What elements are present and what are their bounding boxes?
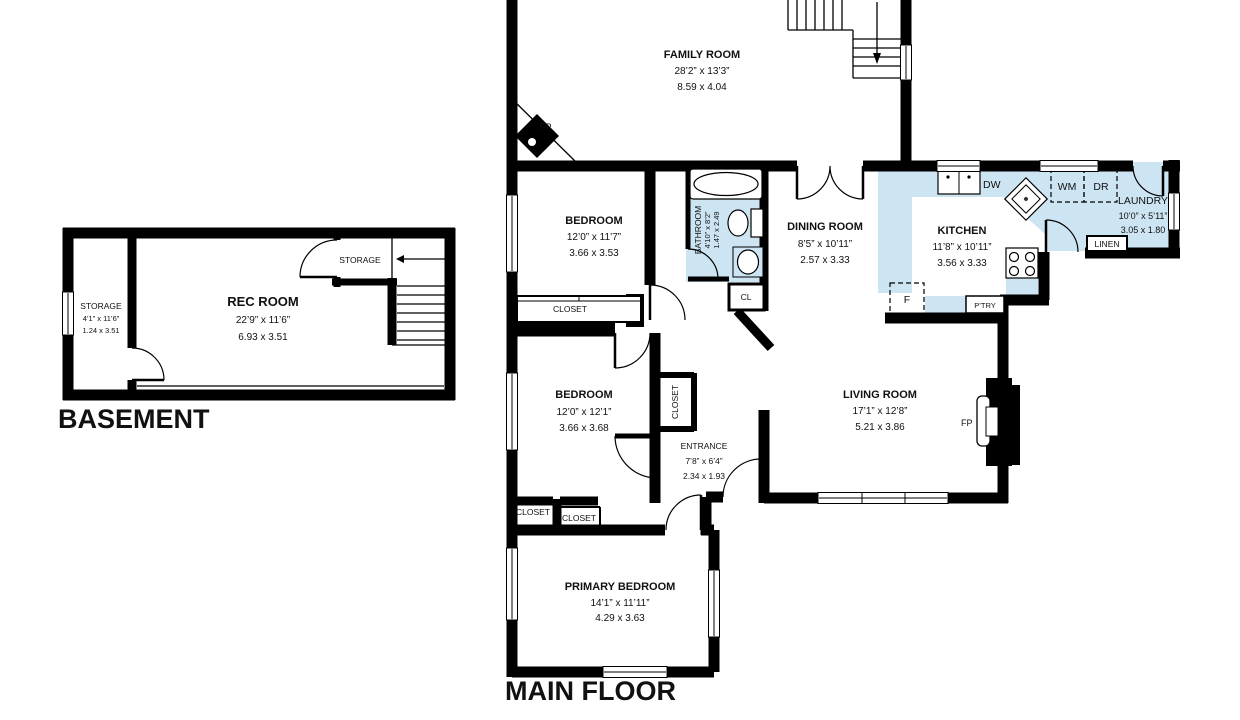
living-room-label: LIVING ROOM — [843, 389, 917, 401]
rec-room-dims-m: 6.93 x 3.51 — [238, 332, 288, 343]
bathroom-label: BATHROOM — [693, 206, 703, 254]
dining-room-dims-m: 2.57 x 3.33 — [800, 255, 850, 266]
primary-bedroom-label: PRIMARY BEDROOM — [565, 581, 676, 593]
bedroom-middle-label: BEDROOM — [555, 389, 612, 401]
hall-closet-label: CLOSET — [670, 385, 680, 419]
bedroom-top-label: BEDROOM — [565, 215, 622, 227]
dining-room-dims-ft: 8’5” x 10’11” — [798, 239, 852, 250]
entrance-dims-ft: 7’8” x 6’4” — [685, 456, 722, 466]
pantry-label: P’TRY — [974, 301, 996, 310]
storage-label: STORAGE — [80, 301, 122, 311]
family-fp-label: FP — [540, 122, 552, 132]
main-stairs — [788, 0, 901, 78]
entrance-dims-m: 2.34 x 1.93 — [683, 471, 725, 481]
bedroom-top-dims-ft: 12’0” x 11’7” — [567, 232, 621, 243]
primary-bedroom-dims-m: 4.29 x 3.63 — [595, 613, 645, 624]
linen-label: LINEN — [1094, 239, 1119, 249]
main-floor-title: MAIN FLOOR — [505, 676, 676, 706]
living-room-dims-ft: 17’1” x 12’8” — [852, 406, 907, 417]
kitchen-label: KITCHEN — [938, 225, 987, 237]
kitchen-dims-ft: 11’8” x 10’11” — [932, 242, 991, 253]
basement-stairs — [392, 233, 450, 345]
stairs-arrow-head — [396, 255, 404, 263]
storage-dims-m: 1.24 x 3.51 — [82, 326, 119, 335]
main-floor-plan: FP FP — [505, 0, 1180, 706]
rec-room-dims-ft: 22’9” x 11’6” — [236, 315, 290, 326]
closet-row1-label: CLOSET — [516, 507, 550, 517]
bedroom-top-dims-m: 3.66 x 3.53 — [569, 248, 619, 259]
family-room-dims-m: 8.59 x 4.04 — [677, 82, 727, 93]
basement-window — [63, 292, 74, 335]
floor-plan-svg: STORAGE 4’1” x 11’6” 1.24 x 3.51 REC ROO… — [0, 0, 1240, 720]
dishwasher-label: DW — [983, 179, 1001, 191]
entrance-label: ENTRANCE — [681, 441, 728, 451]
bedroom-top-closet-label: CLOSET — [553, 304, 587, 314]
kitchen-dims-m: 3.56 x 3.33 — [937, 258, 987, 269]
basement-upper-storage-door — [300, 240, 337, 277]
closet-row2-label: CLOSET — [562, 513, 596, 523]
kitchen-counter-pantry — [925, 296, 966, 314]
bathroom-dims-m: 1.47 x 2.49 — [712, 211, 721, 248]
rec-room-label: REC ROOM — [227, 294, 299, 309]
fireplace-icon — [515, 114, 559, 158]
living-room-dims-m: 5.21 x 3.86 — [855, 422, 905, 433]
floor-plan-image: STORAGE 4’1” x 11’6” 1.24 x 3.51 REC ROO… — [0, 0, 1240, 720]
upper-storage-label: STORAGE — [339, 255, 381, 265]
laundry-label: LAUNDRY — [1118, 195, 1168, 207]
storage-dims-ft: 4’1” x 11’6” — [83, 314, 120, 323]
dryer-label: DR — [1093, 181, 1109, 193]
basement-plan: STORAGE 4’1” x 11’6” 1.24 x 3.51 REC ROO… — [58, 228, 455, 434]
bathroom-dims-ft: 4’10” x 8’2” — [703, 211, 712, 249]
living-fireplace — [977, 378, 1020, 466]
laundry-dims-ft: 10’0” x 5’11” — [1119, 211, 1168, 221]
family-room-label: FAMILY ROOM — [664, 49, 740, 61]
kitchen-counter-left — [878, 164, 912, 293]
basement-title: BASEMENT — [58, 404, 210, 434]
basement-storage-door — [132, 348, 164, 380]
fridge-label: F — [904, 294, 910, 306]
primary-bedroom-dims-ft: 14’1” x 11’11” — [590, 598, 649, 609]
bedroom-middle-dims-ft: 12’0” x 12’1” — [556, 407, 611, 418]
washer-label: WM — [1058, 181, 1077, 193]
toilet-icon — [751, 209, 763, 237]
dining-room-label: DINING ROOM — [787, 221, 863, 233]
stairs-arrow-head — [873, 53, 881, 64]
cl-label: CL — [741, 292, 752, 302]
family-room-dims-ft: 28’2” x 13’3” — [674, 66, 729, 77]
bedroom-middle-dims-m: 3.66 x 3.68 — [559, 423, 609, 434]
main-floor-walls — [512, 0, 1180, 677]
living-fp-label: FP — [961, 418, 973, 428]
laundry-dims-m: 3.05 x 1.80 — [1121, 225, 1166, 235]
